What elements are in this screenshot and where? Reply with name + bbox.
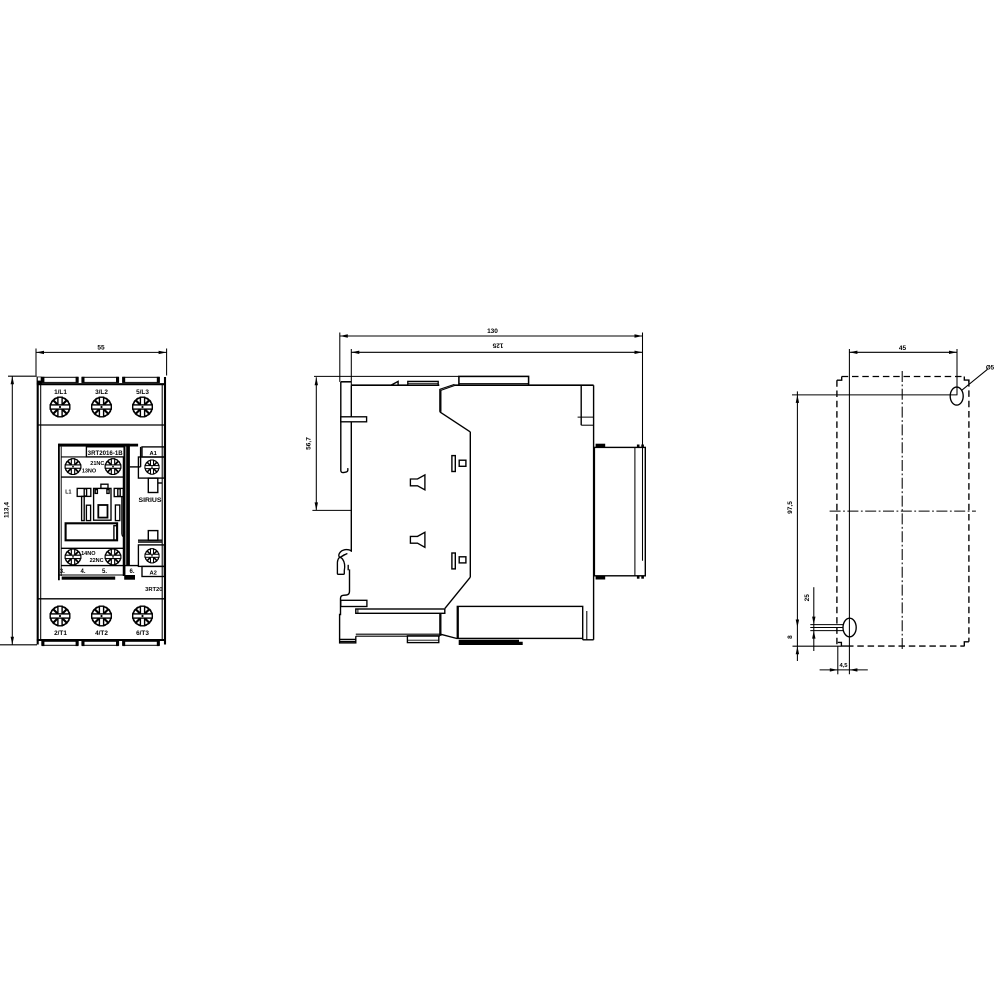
svg-text:22NC: 22NC xyxy=(90,558,104,564)
svg-text:5/L3: 5/L3 xyxy=(136,389,149,396)
svg-text:14NO: 14NO xyxy=(81,551,96,557)
svg-text:SIRIUS: SIRIUS xyxy=(139,497,162,504)
svg-text:5.: 5. xyxy=(102,569,107,575)
svg-text:3.: 3. xyxy=(60,569,65,575)
svg-text:130: 130 xyxy=(487,328,498,335)
svg-text:A1: A1 xyxy=(149,451,157,457)
svg-text:3RT2016-1B: 3RT2016-1B xyxy=(88,451,124,457)
svg-text:Ø5: Ø5 xyxy=(986,365,995,372)
svg-text:125: 125 xyxy=(492,342,503,349)
svg-text:8: 8 xyxy=(787,635,794,639)
svg-text:3RT20: 3RT20 xyxy=(145,587,162,593)
svg-text:4.: 4. xyxy=(80,569,85,575)
svg-text:13NO: 13NO xyxy=(82,469,97,475)
svg-text:113,4: 113,4 xyxy=(4,502,11,518)
svg-text:56,7: 56,7 xyxy=(306,437,313,450)
svg-text:2/T1: 2/T1 xyxy=(54,630,67,637)
svg-text:L1: L1 xyxy=(65,490,71,496)
svg-text:25: 25 xyxy=(804,594,811,602)
svg-text:21NC: 21NC xyxy=(90,461,104,467)
svg-text:45: 45 xyxy=(899,345,907,352)
svg-text:6.: 6. xyxy=(129,569,134,575)
svg-text:55: 55 xyxy=(97,345,105,352)
svg-text:3/L2: 3/L2 xyxy=(95,389,108,396)
svg-text:4,5: 4,5 xyxy=(839,663,848,669)
svg-text:97,5: 97,5 xyxy=(787,501,794,514)
svg-text:4/T2: 4/T2 xyxy=(95,630,108,637)
svg-text:A2: A2 xyxy=(149,571,156,577)
svg-text:1/L1: 1/L1 xyxy=(54,389,67,396)
svg-text:6/T3: 6/T3 xyxy=(136,630,149,637)
